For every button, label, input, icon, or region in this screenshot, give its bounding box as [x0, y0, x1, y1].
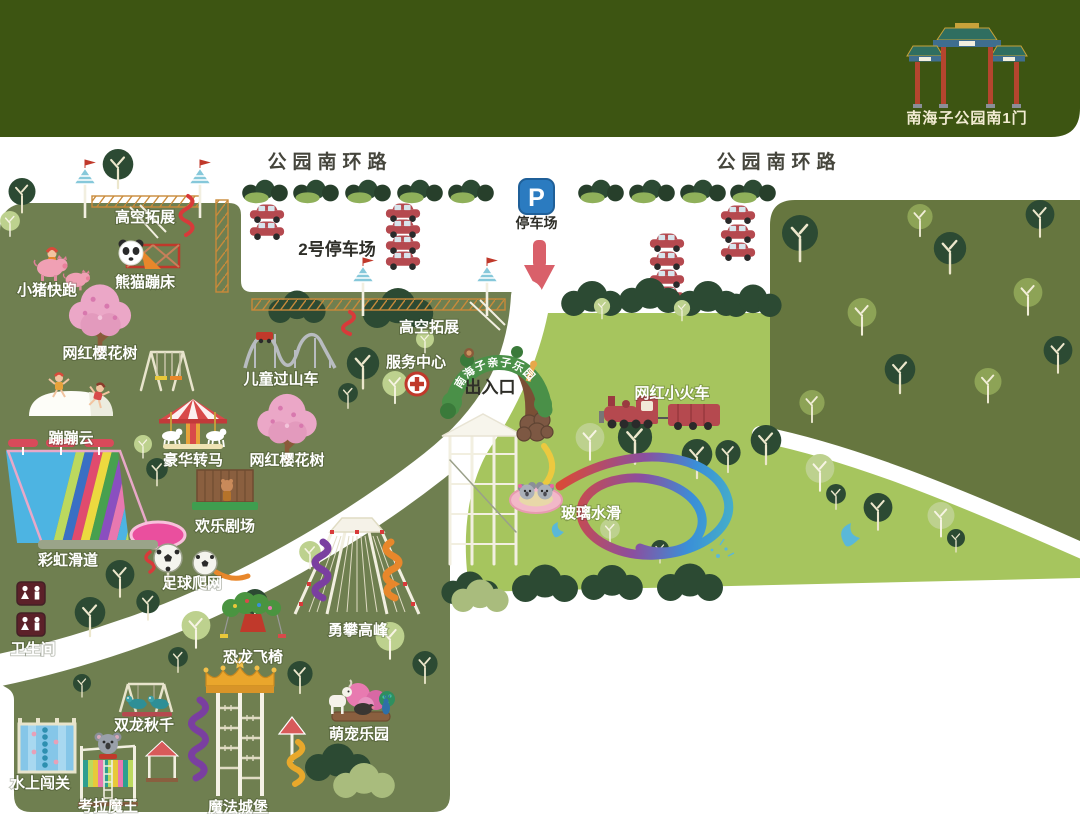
label-water-challenge: 水上闯关 [10, 774, 70, 792]
label-restroom: 卫生间 [10, 640, 55, 658]
label-glass-water-slide: 玻璃水滑 [561, 504, 621, 522]
label-rope-course-1: 高空拓展 [115, 208, 175, 226]
label-pig-run: 小猪快跑 [17, 281, 77, 299]
label-happy-theater: 欢乐剧场 [194, 517, 255, 535]
park-map-screenshot: 南海子公园南1门 公园南环路 公园南环路 P 停车场 2号停车场 [0, 0, 1080, 814]
label-koala-king: 考拉魔王 [78, 797, 138, 814]
road-label-right: 公园南环路 [716, 150, 841, 173]
label-dino-flying-chair: 恐龙飞椅 [223, 648, 283, 666]
label-exit: 出入口 [465, 377, 516, 397]
road-label-left: 公园南环路 [267, 150, 392, 173]
label-soccer-climb-net: 足球爬网 [162, 574, 222, 592]
parking-sign-label: 停车场 [516, 215, 558, 231]
label-bouncing-cloud: 蹦蹦云 [48, 429, 93, 447]
label-pet-paradise: 萌宠乐园 [329, 725, 389, 743]
service-center-icon [406, 373, 428, 395]
water-challenge [18, 718, 76, 772]
gate-label: 南海子公园南1门 [906, 109, 1027, 127]
restroom-sign-1-icon [17, 582, 45, 605]
parking-lot2-label: 2号停车场 [298, 239, 375, 259]
parking-sign: P 停车场 [516, 179, 558, 231]
label-service-center: 服务中心 [386, 353, 446, 371]
label-panda-trampoline: 熊猫蹦床 [115, 273, 176, 291]
roadside-hedges [242, 180, 776, 203]
label-double-dragon-swing: 双龙秋千 [114, 716, 174, 734]
label-train: 网红小火车 [634, 384, 709, 402]
parking-p: P [528, 184, 545, 212]
label-kids-coaster: 儿童过山车 [242, 370, 318, 388]
label-cherry-tree-1: 网红樱花树 [62, 344, 137, 362]
label-cherry-tree-2: 网红樱花树 [249, 451, 324, 469]
label-rainbow-slide: 彩虹滑道 [37, 551, 98, 569]
label-carousel: 豪华转马 [163, 451, 223, 469]
park-map: 南海子公园南1门 公园南环路 公园南环路 P 停车场 2号停车场 [0, 0, 1080, 814]
label-rope-course-2: 高空拓展 [399, 318, 459, 336]
label-climb-peak: 勇攀高峰 [328, 621, 389, 639]
restroom-sign-2-icon [17, 613, 45, 636]
happy-theater [192, 470, 258, 510]
label-magic-castle: 魔法城堡 [208, 798, 268, 814]
